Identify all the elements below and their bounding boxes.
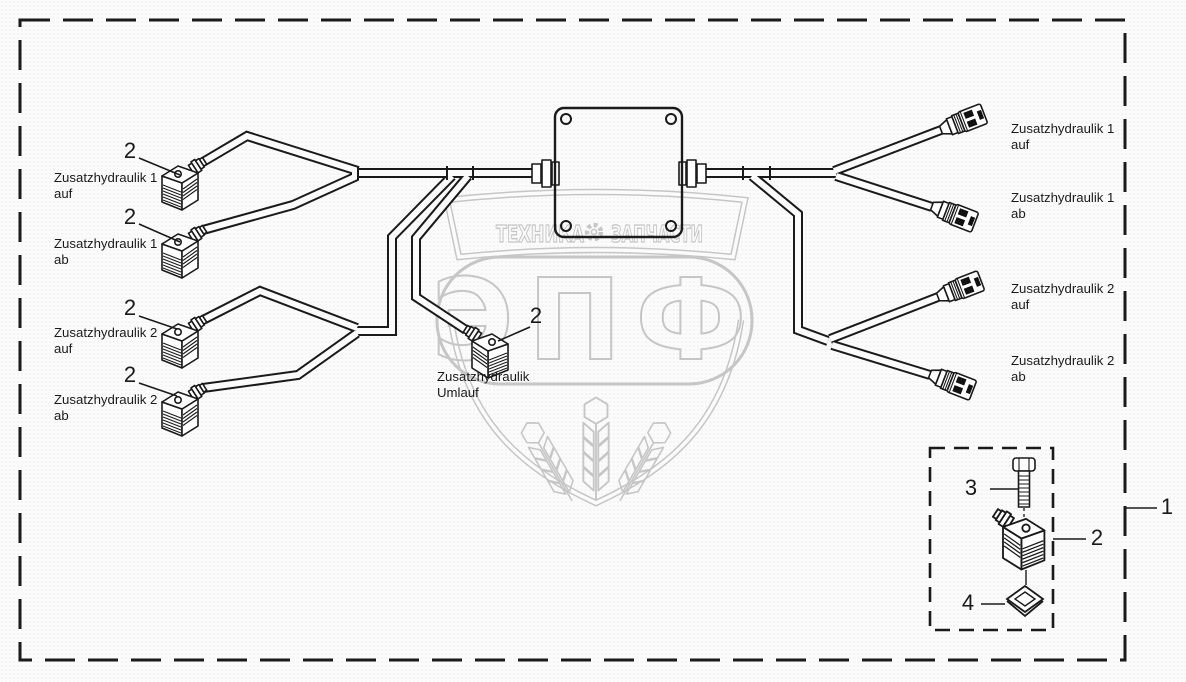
callout-left-2: 2 xyxy=(121,206,139,228)
callout-left-4: 2 xyxy=(121,364,139,386)
watermark-wheat-icon xyxy=(517,397,674,506)
label-zusatzhydraulik-2-auf-left: Zusatzhydraulik 2 auf xyxy=(54,325,157,356)
label-line: ab xyxy=(1011,369,1114,385)
label-line: Zusatzhydraulik 1 xyxy=(54,236,157,252)
parts-diagram-page: ТЕХНИКА ЗАПЧАСТИ ЭПФ xyxy=(0,0,1186,682)
plug-connector-1-auf xyxy=(937,104,987,140)
label-line: Zusatzhydraulik xyxy=(437,369,529,385)
watermark-tagline-right: ЗАПЧАСТИ xyxy=(611,222,703,248)
plug-connector-2-auf xyxy=(934,271,984,307)
label-line: ab xyxy=(1011,206,1114,222)
label-zusatzhydraulik-2-auf-right: Zusatzhydraulik 2 auf xyxy=(1011,281,1114,312)
label-zusatzhydraulik-1-ab-left: Zusatzhydraulik 1 ab xyxy=(54,236,157,267)
callout-detail-bolt: 3 xyxy=(962,477,980,499)
callout-assembly: 1 xyxy=(1158,496,1176,518)
label-line: auf xyxy=(54,341,157,357)
label-zusatzhydraulik-1-ab-right: Zusatzhydraulik 1 ab xyxy=(1011,190,1114,221)
label-zusatzhydraulik-2-ab-right: Zusatzhydraulik 2 ab xyxy=(1011,353,1114,384)
din-connector-2-ab xyxy=(162,381,208,436)
label-line: Zusatzhydraulik 1 xyxy=(1011,121,1114,137)
label-zusatzhydraulik-umlauf: Zusatzhydraulik Umlauf xyxy=(437,369,529,400)
bolt-item xyxy=(1013,458,1035,507)
callout-center: 2 xyxy=(527,305,545,327)
din-connector-2-auf xyxy=(162,313,208,368)
detail-inset-box xyxy=(930,448,1053,630)
seal-item xyxy=(1007,586,1043,616)
label-line: Umlauf xyxy=(437,385,529,401)
label-line: ab xyxy=(54,252,157,268)
label-line: auf xyxy=(1011,137,1114,153)
label-line: auf xyxy=(1011,297,1114,313)
callout-detail-seal: 4 xyxy=(959,592,977,614)
callout-detail-connector: 2 xyxy=(1088,527,1106,549)
plug-connector-2-ab xyxy=(926,364,976,400)
din-connector-1-ab xyxy=(162,223,208,278)
callout-left-3: 2 xyxy=(121,297,139,319)
label-line: Zusatzhydraulik 1 xyxy=(1011,190,1114,206)
label-zusatzhydraulik-1-auf-left: Zusatzhydraulik 1 auf xyxy=(54,170,157,201)
label-line: ab xyxy=(54,408,157,424)
label-line: Zusatzhydraulik 2 xyxy=(1011,281,1114,297)
diagram-canvas: ТЕХНИКА ЗАПЧАСТИ ЭПФ xyxy=(0,0,1186,682)
label-line: Zusatzhydraulik 2 xyxy=(1011,353,1114,369)
detail-connector-item xyxy=(991,507,1044,570)
callout-left-1: 2 xyxy=(121,140,139,162)
label-zusatzhydraulik-1-auf-right: Zusatzhydraulik 1 auf xyxy=(1011,121,1114,152)
din-connector-1-auf xyxy=(162,155,208,210)
label-line: Zusatzhydraulik 2 xyxy=(54,325,157,341)
label-line: Zusatzhydraulik 1 xyxy=(54,170,157,186)
label-line: auf xyxy=(54,186,157,202)
label-line: Zusatzhydraulik 2 xyxy=(54,392,157,408)
plug-connector-1-ab xyxy=(928,196,978,232)
center-plate xyxy=(532,108,706,237)
label-zusatzhydraulik-2-ab-left: Zusatzhydraulik 2 ab xyxy=(54,392,157,423)
